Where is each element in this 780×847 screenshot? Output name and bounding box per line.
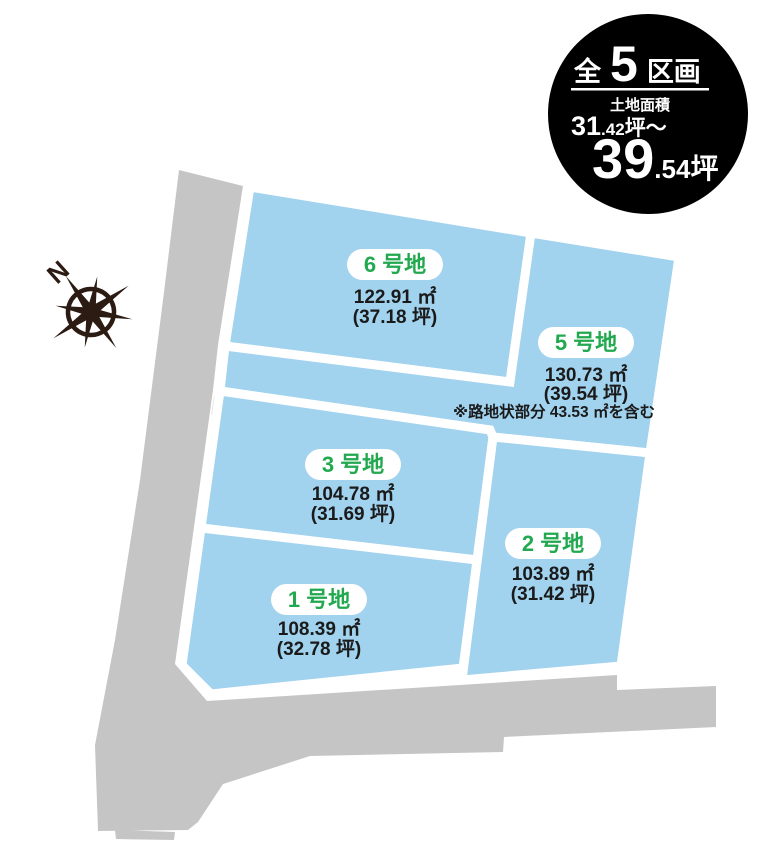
plot-1-label: 1 号地 (288, 587, 350, 612)
plot-1-labels: 1 号地 108.39 ㎡ (32.78 坪) (271, 584, 367, 660)
plot-3-label: 3 号地 (322, 452, 384, 477)
plot-6-area-sqm: 122.91 ㎡ (354, 285, 436, 308)
plot-3-area-sqm: 104.78 ㎡ (312, 482, 394, 505)
plot-6-labels: 6 号地 122.91 ㎡ (37.18 坪) (347, 249, 443, 328)
plot-3-labels: 3 号地 104.78 ㎡ (31.69 坪) (305, 449, 401, 525)
plot-3-area-tsubo: (31.69 坪) (311, 503, 395, 525)
badge-area-label: 土地面積 (610, 96, 671, 114)
plot-1-area-sqm: 108.39 ㎡ (278, 617, 360, 640)
badge-max-unit: 坪 (690, 153, 718, 184)
plot-2-label: 2 号地 (522, 531, 584, 556)
badge-total-suffix: 区画 (647, 57, 701, 87)
badge-max-decimal: .54 (654, 154, 691, 184)
plot-2-labels: 2 号地 103.89 ㎡ (31.42 坪) (505, 528, 601, 605)
badge-max-value: 39 (592, 127, 654, 190)
plot-5-area-tsubo: (39.54 坪) (544, 383, 628, 405)
plot-1-area-tsubo: (32.78 坪) (277, 638, 361, 660)
plot-5-area-sqm: 130.73 ㎡ (545, 363, 627, 386)
plot-2-area-sqm: 103.89 ㎡ (512, 562, 594, 585)
plot-5-flagpole-note: ※路地状部分 43.53 ㎡を含む (453, 402, 655, 421)
badge-total-prefix: 全 (573, 56, 602, 87)
plot-6-label: 6 号地 (364, 252, 426, 277)
plot-2-area-tsubo: (31.42 坪) (511, 583, 595, 605)
summary-badge: 全5区画 土地面積 31.42坪〜 39.54坪 (548, 14, 748, 214)
badge-total-count: 5 (610, 36, 638, 92)
lot-map-page: 6 号地 122.91 ㎡ (37.18 坪) 5 号地 130.73 ㎡ (3… (0, 0, 780, 847)
badge-divider (571, 88, 709, 91)
plot-5-label: 5 号地 (555, 330, 617, 355)
lot-map-canvas: 6 号地 122.91 ㎡ (37.18 坪) 5 号地 130.73 ㎡ (3… (0, 0, 780, 847)
plot-6-area-tsubo: (37.18 坪) (353, 306, 437, 328)
